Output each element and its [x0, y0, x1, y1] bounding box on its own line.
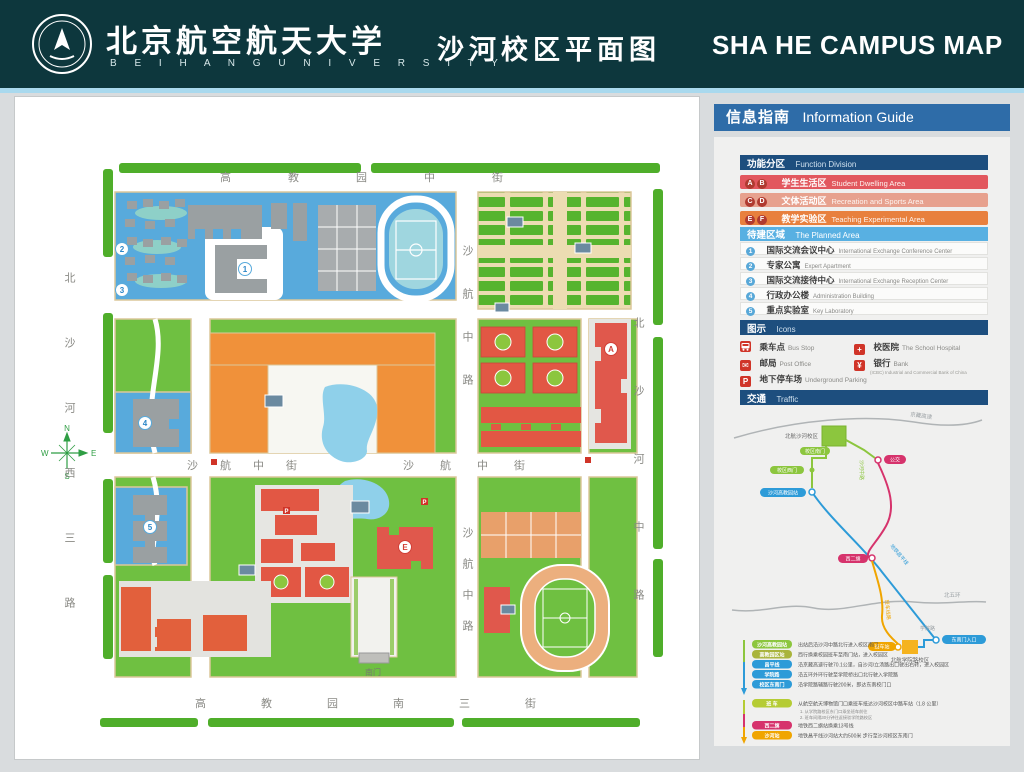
zone-teaching-experimental: EF 教学实验区Teaching Experimental Area [740, 211, 988, 225]
svg-text:西二旗: 西二旗 [845, 556, 860, 563]
badge-e: E [399, 541, 412, 554]
badge-4: 4 [139, 417, 152, 430]
legend-post-office: ✉ 邮局Post Office [740, 356, 811, 370]
zone-badge: A [745, 179, 755, 189]
ring-road-label: 北五环 [944, 591, 961, 599]
header-divider [0, 88, 1024, 93]
zone-badge: C [745, 197, 755, 207]
planned-item-5: 5 重点实验室Key Laboratory [740, 302, 988, 315]
badge-1: 1 [239, 263, 252, 276]
planned-item-4: 4 行政办公楼Administration Building [740, 287, 988, 300]
south-gate-label: 南门 [365, 667, 381, 678]
number-badge: 1 [746, 247, 755, 256]
branch-road-label: 学院路 [920, 625, 935, 632]
planned-courts [318, 205, 376, 291]
red-cross-icon: + [854, 344, 865, 355]
svg-text:W: W [41, 449, 49, 458]
yuan-icon: ¥ [854, 360, 865, 371]
svg-text:P: P [422, 500, 426, 506]
highway-label: 京藏高速 [910, 410, 933, 421]
street-mid-east: 沙航中街 [403, 457, 551, 473]
zone-badge: E [745, 215, 755, 225]
legend-row: 高教园区站西行换乘校园班车至南门站，进入校园区 [752, 650, 888, 659]
dorm-slab [589, 319, 631, 449]
svg-text:沙河高教园站: 沙河高教园站 [757, 641, 787, 648]
svg-text:西二旗: 西二旗 [764, 722, 779, 729]
south-gate [359, 653, 389, 663]
walk-route-label: 沙河中路 [858, 460, 865, 480]
svg-text:E: E [402, 543, 408, 552]
information-guide-header: 信息指南 Information Guide [714, 104, 1010, 131]
legend-row: 沙河站地铁昌平线沙河站大约500米 步行至沙河校区东南门 [752, 731, 913, 740]
traffic-legend: 沙河高教园站出站后沿沙河中路北行进入校区南门 高教园区站西行换乘校园班车至南门站… [752, 640, 949, 740]
street-right: 北沙河中路 [630, 317, 646, 657]
svg-text:沿学院路辅路行驶200米，即达东南校门口: 沿学院路辅路行驶200米，即达东南校门口 [798, 682, 891, 689]
traffic-diagram: 京藏高速 北五环 北航沙河校区 沙河中路 校区南门 校区西门 沙河高教园站 地铁… [714, 400, 1010, 746]
zone-badge: B [757, 179, 767, 189]
planned-item-2: 2 专家公寓Expert Apartment [740, 257, 988, 270]
svg-text:班 车: 班 车 [766, 700, 777, 707]
svg-text:3: 3 [120, 286, 125, 295]
xueyuanlu-campus-square [902, 640, 918, 654]
svg-text:昌平线: 昌平线 [764, 661, 779, 668]
badge-a: A [605, 343, 618, 356]
legend-row: 沙河高教园站出站后沿沙河中路北行进入校区南门 [752, 640, 878, 649]
parking-icon: P [740, 376, 751, 387]
badge-2: 2 [116, 243, 129, 256]
number-badge: 4 [746, 292, 755, 301]
svg-text:2. 班车间隔30分钟往返接驳学院路校区: 2. 班车间隔30分钟往返接驳学院路校区 [800, 714, 872, 721]
number-badge: 3 [746, 277, 755, 286]
svg-text:沿五环外环行驶至学院桥出口北行驶入学院路: 沿五环外环行驶至学院桥出口北行驶入学院路 [798, 672, 898, 679]
svg-text:1: 1 [243, 265, 248, 274]
poster-title-en: SHA HE CAMPUS MAP [712, 30, 1003, 61]
beihang-logo-icon [30, 12, 94, 76]
street-mid-west: 沙航中街 [187, 457, 319, 473]
svg-text:西行换乘校园班车至南门站，进入校园区: 西行换乘校园班车至南门站，进入校园区 [798, 652, 888, 659]
bus-line [868, 463, 891, 558]
subway-line-label: 地铁昌平线 [888, 543, 909, 567]
svg-text:沙河站: 沙河站 [764, 732, 779, 739]
zone-badge: D [757, 197, 767, 207]
svg-text:沿京藏高速行驶70.1公里，自沙河/立汤路出口驶出右转，进入: 沿京藏高速行驶70.1公里，自沙河/立汤路出口驶出右转，进入校园区 [798, 662, 949, 669]
svg-text:4: 4 [143, 419, 148, 428]
planned-item-3: 3 国际交流接待中心International Exchange Recepti… [740, 272, 988, 285]
badge-3: 3 [116, 284, 129, 297]
planned-item-1: 1 国际交流会议中心International Exchange Confere… [740, 242, 988, 255]
svg-text:A: A [608, 345, 614, 354]
svg-text:地铁西二旗站换乘13号线: 地铁西二旗站换乘13号线 [798, 723, 854, 730]
shahe-campus-square [822, 426, 846, 446]
campus-map: P P N E S W 1 2 3 4 5 A [14, 96, 700, 760]
street-left: 北沙河西三路 [61, 272, 77, 662]
legend-bank: ¥ 银行Bank (ICBC) Industrial and Commercia… [854, 356, 908, 370]
highway-road [734, 419, 982, 438]
zone-student-dwelling: AB 学生生活区Student Dwelling Area [740, 175, 988, 189]
street-bottom: 高教园南三街 [195, 695, 591, 711]
university-name-cn: 北京航空航天大学 [106, 16, 386, 61]
legend-row: 班 车从航空航天博物馆门口乘班车抵达沙河校区中路车站（1.8 公里） 1. 从学… [752, 699, 941, 721]
section-icons: 图示 Icons [740, 320, 988, 335]
svg-text:1. 从学院路校区东门口乘坐班车前往: 1. 从学院路校区东门口乘坐班车前往 [800, 708, 867, 715]
poster-title-cn: 沙河校区平面图 [437, 28, 661, 67]
bus-icon [740, 341, 751, 352]
street-v-lower: 沙航中路 [459, 527, 475, 651]
shahe-campus-label: 北航沙河校区 [785, 432, 819, 440]
street-top: 高教园中街 [220, 169, 560, 185]
header-bar: 北京航空航天大学 B E I H A N G U N I V E R S I T… [0, 0, 1024, 88]
svg-text:公交: 公交 [890, 457, 900, 464]
bus-stop-marker-icon [585, 457, 591, 463]
ring-road [732, 601, 986, 610]
information-guide-panel: 功能分区 Function Division AB 学生生活区Student D… [714, 137, 1010, 746]
legend-row: 学院路沿五环外环行驶至学院桥出口北行驶入学院路 [752, 670, 898, 679]
section-planned-area: 待建区域 The Planned Area [740, 227, 988, 241]
campus-map-svg: P P N E S W 1 2 3 4 5 A [15, 97, 699, 759]
street-v-upper: 沙航中路 [459, 245, 475, 417]
legend-underground-parking: P 地下停车场Underground Parking [740, 372, 867, 386]
svg-text:东南门入口: 东南门入口 [951, 637, 976, 644]
legend-row: 校区东南门沿学院路辅路行驶200米，即达东南校门口 [752, 680, 891, 689]
svg-text:E: E [91, 449, 96, 458]
svg-text:校区东南门: 校区东南门 [759, 681, 784, 688]
badge-5: 5 [144, 521, 157, 534]
teaching-complex [210, 333, 435, 462]
svg-text:从航空航天博物馆门口乘班车抵达沙河校区中路车站（1.8 公里: 从航空航天博物馆门口乘班车抵达沙河校区中路车站（1.8 公里） [798, 701, 941, 708]
envelope-icon: ✉ [740, 360, 751, 371]
legend-hospital: + 校医院The School Hospital [854, 340, 960, 354]
zone-badge: F [757, 215, 767, 225]
parking-marker-icon: P [283, 507, 290, 515]
section-function-division: 功能分区 Function Division [740, 155, 988, 170]
svg-text:5: 5 [148, 523, 153, 532]
guide-title-en: Information Guide [802, 109, 913, 125]
svg-text:校区西门: 校区西门 [777, 467, 797, 474]
guide-title-cn: 信息指南 [726, 109, 790, 126]
svg-text:高教园区站: 高教园区站 [759, 651, 784, 658]
svg-text:学院路: 学院路 [764, 671, 780, 678]
southwest-cluster [119, 581, 271, 657]
svg-text:沙河高教园站: 沙河高教园站 [768, 490, 798, 497]
bank-subtext: (ICBC) Industrial and Commercial Bank of… [870, 367, 967, 379]
svg-text:校区南门: 校区南门 [805, 448, 825, 455]
svg-text:P: P [284, 509, 288, 515]
number-badge: 2 [746, 262, 755, 271]
parking-marker-icon: P [421, 498, 428, 506]
campus-map-poster: 北京航空航天大学 B E I H A N G U N I V E R S I T… [0, 0, 1024, 772]
svg-text:出站后沿沙河中路北行进入校区南门: 出站后沿沙河中路北行进入校区南门 [798, 642, 878, 649]
svg-text:2: 2 [120, 245, 125, 254]
legend-row: 西二旗地铁西二旗站换乘13号线 [752, 721, 854, 730]
svg-text:地铁昌平线沙河站大约500米 步行至沙河校区东南门: 地铁昌平线沙河站大约500米 步行至沙河校区东南门 [798, 733, 913, 740]
shuttle-line-label: 班车线路 [883, 599, 892, 620]
legend-bus-stop: 乘车点Bus Stop [740, 340, 814, 354]
zone-recreation-sports: CD 文体活动区Recreation and Sports Area [740, 193, 988, 207]
number-badge: 5 [746, 307, 755, 316]
